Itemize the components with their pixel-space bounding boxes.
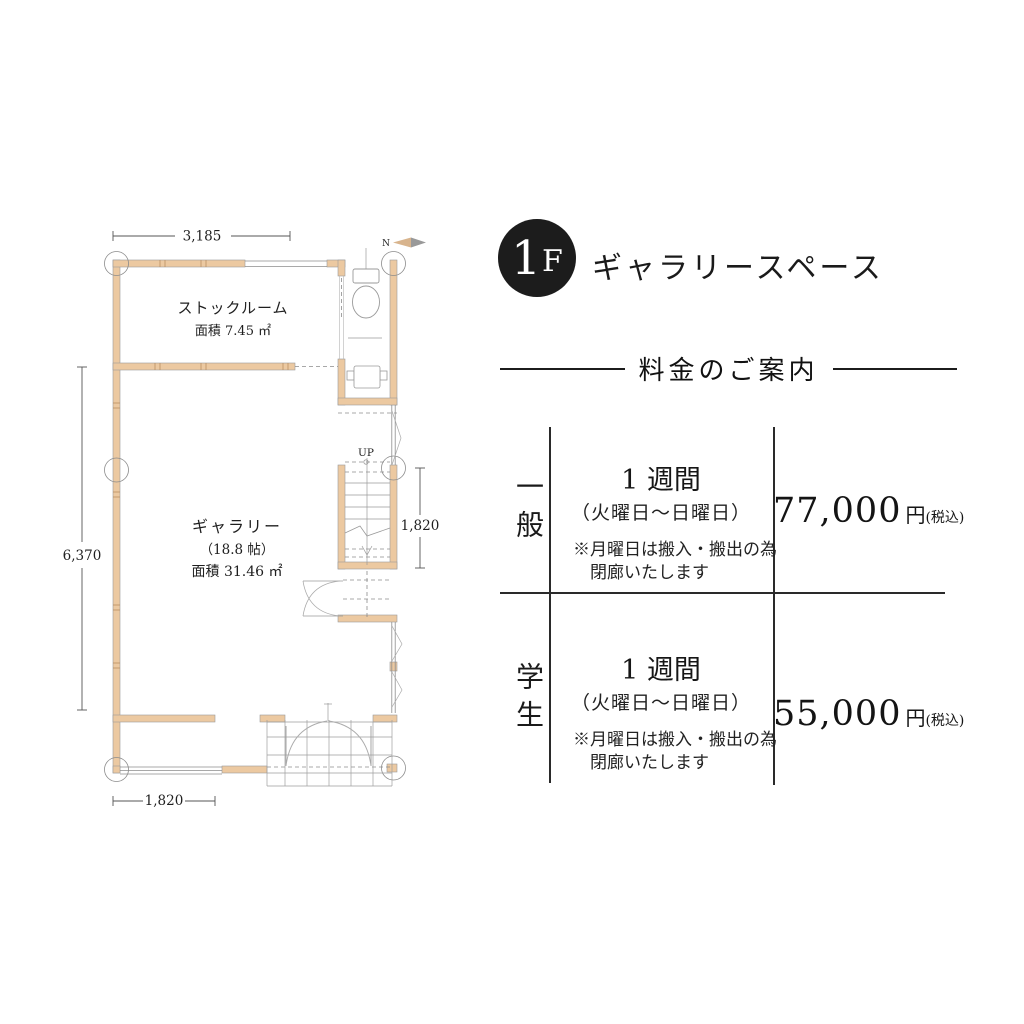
dimension-stairs-label: 1,820 xyxy=(401,518,440,534)
row-student-note-line2: 閉廊いたします xyxy=(573,752,777,775)
row-general-category: 一般 xyxy=(508,472,548,548)
floor-badge: 1 F xyxy=(498,219,576,297)
row-student-note-line1: ※月曜日は搬入・搬出の為 xyxy=(573,729,777,752)
stock-room-area: 面積 7.45 ㎡ xyxy=(195,324,271,339)
row-general-price: 77,000円(税込) xyxy=(773,491,949,531)
dimension-bottom-label: 1,820 xyxy=(145,793,184,809)
floor-plan: 3,185 N xyxy=(55,215,455,825)
row-student-duration: 1 週間 xyxy=(549,648,773,687)
rule-right xyxy=(833,368,958,370)
row-general-note-line2: 閉廊いたします xyxy=(573,562,777,585)
row-student-price: 55,000円(税込) xyxy=(773,694,949,734)
rule-left xyxy=(500,368,625,370)
row-student-price-yen: 円 xyxy=(905,706,925,730)
row-general-price-tax: (税込) xyxy=(925,510,964,526)
entrance-doors-icon xyxy=(286,703,371,766)
double-door-gallery-icon xyxy=(303,581,343,616)
row-student-period: （火曜日〜日曜日） xyxy=(549,688,773,715)
gallery-area: 面積 31.46 ㎡ xyxy=(192,564,283,580)
north-arrow-icon xyxy=(393,238,426,248)
gallery-size: （18.8 帖） xyxy=(200,542,275,558)
row-general-duration: 1 週間 xyxy=(549,458,773,497)
table-hline xyxy=(500,592,945,594)
dimension-left xyxy=(77,367,87,710)
floor-badge-letter: F xyxy=(542,247,563,277)
floor-badge-number: 1 xyxy=(511,235,541,282)
dimension-top-label: 3,185 xyxy=(183,229,222,245)
page-title: ギャラリースペース xyxy=(592,243,884,287)
pricing-section-header: 料金のご案内 xyxy=(500,350,957,387)
up-label: UP xyxy=(358,447,374,459)
row-general-period: （火曜日〜日曜日） xyxy=(549,498,773,525)
wall-joints xyxy=(113,260,288,668)
row-student-price-value: 55,000 xyxy=(773,694,901,734)
row-student-price-tax: (税込) xyxy=(925,713,964,729)
row-student-category: 学生 xyxy=(508,662,548,738)
gallery-info-sheet: 3,185 N xyxy=(0,0,1024,1024)
row-general-note-line1: ※月曜日は搬入・搬出の為 xyxy=(573,539,777,562)
gallery-name: ギャラリー xyxy=(192,517,282,536)
dashed-lines xyxy=(267,278,397,767)
pricing-section-title: 料金のご案内 xyxy=(639,350,819,387)
sink-icon xyxy=(347,366,387,388)
row-general-price-value: 77,000 xyxy=(773,491,901,531)
row-student-note: ※月曜日は搬入・搬出の為 閉廊いたします xyxy=(573,729,777,776)
row-general-note: ※月曜日は搬入・搬出の為 閉廊いたします xyxy=(573,539,777,586)
dimension-left-label: 6,370 xyxy=(63,548,102,564)
stock-room-name: ストックルーム xyxy=(177,299,288,317)
toilet-icon xyxy=(339,248,382,359)
row-general-price-yen: 円 xyxy=(905,503,925,527)
north-label: N xyxy=(382,239,390,249)
